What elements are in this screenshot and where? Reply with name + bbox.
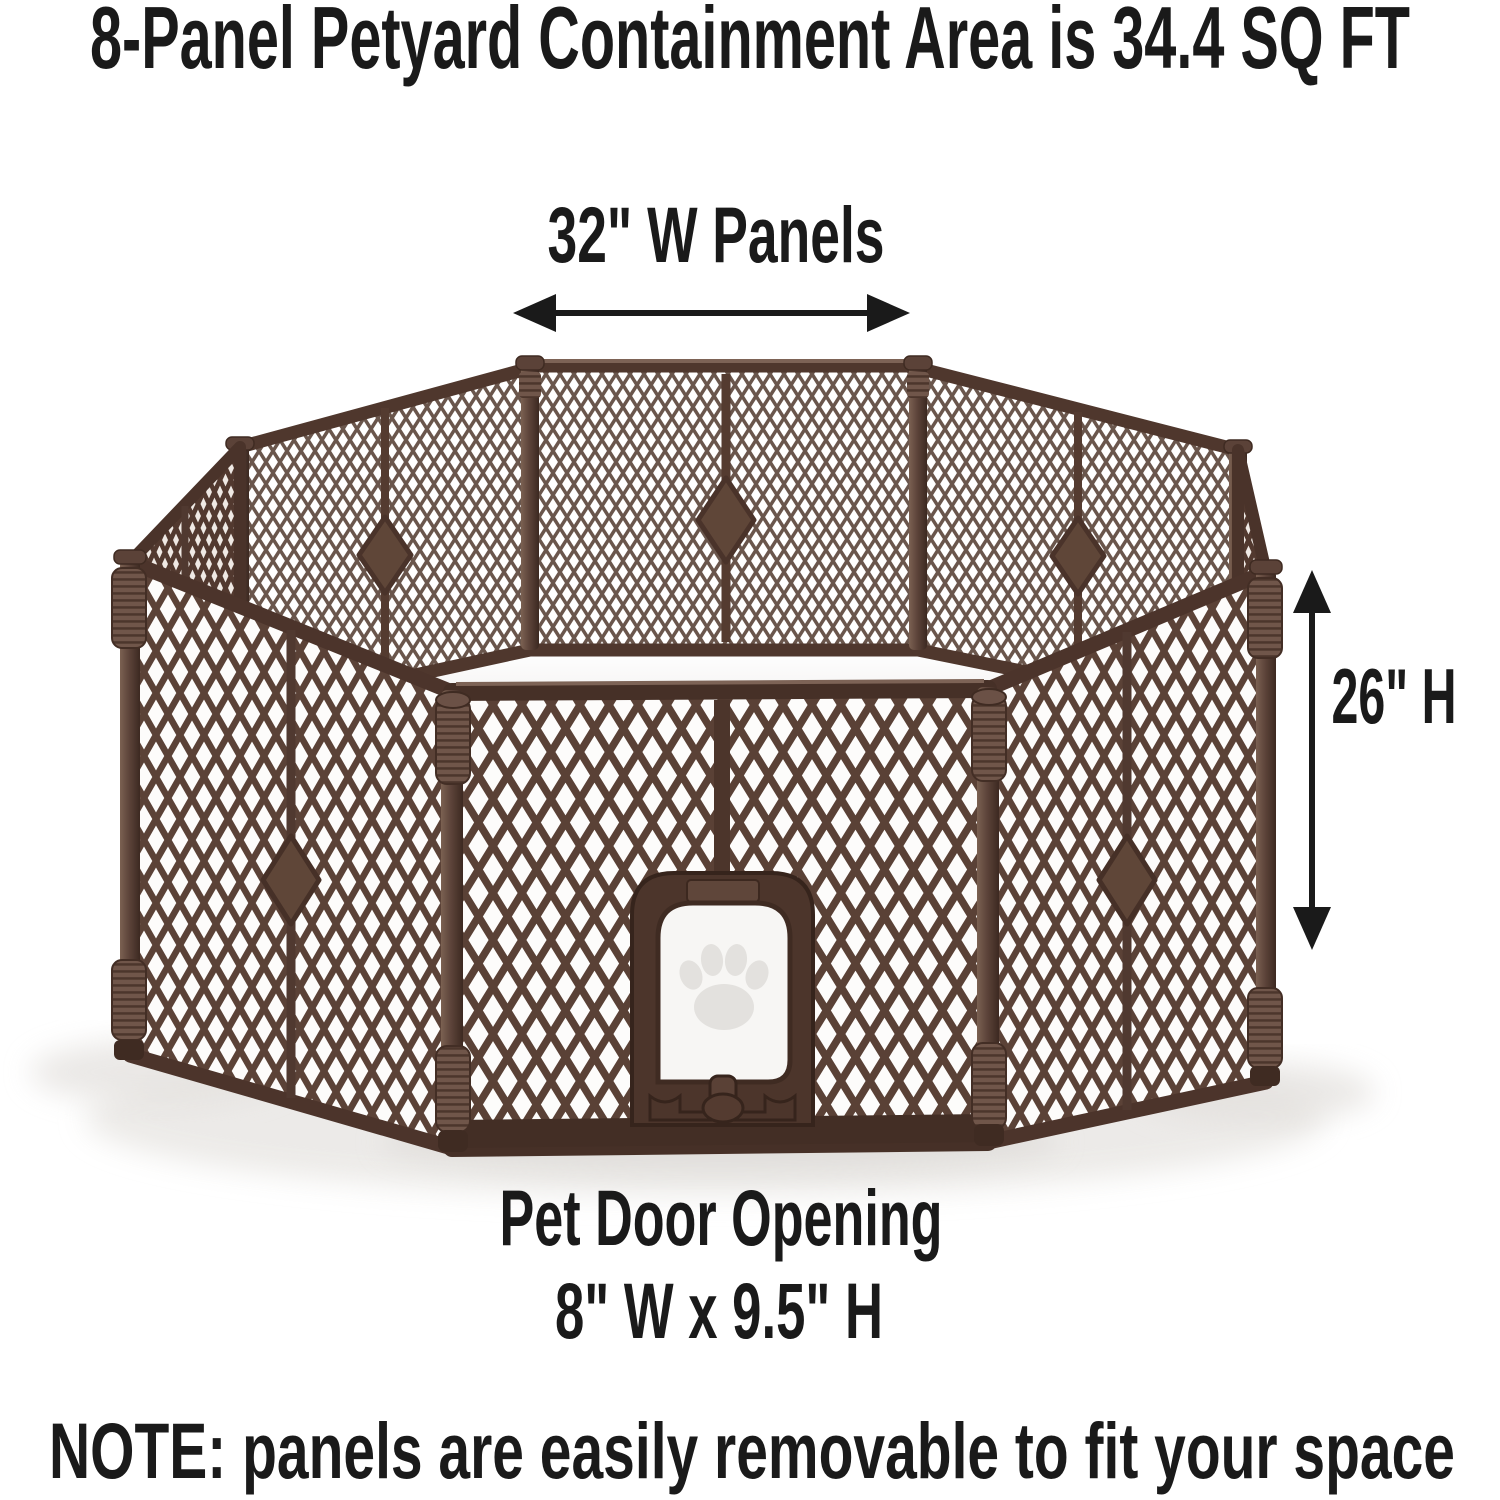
vertical-double-arrow-icon: [1293, 570, 1331, 950]
pet-door-size-label: 8" W x 9.5" H: [555, 1266, 883, 1355]
panel-height-label: 26" H: [1332, 652, 1457, 740]
petyard-illustration: 8-Panel Petyard Containment Area is 34.4…: [0, 0, 1500, 1500]
page-title: 8-Panel Petyard Containment Area is 34.4…: [90, 0, 1410, 87]
panel-back-center: [530, 361, 918, 650]
pet-door: [632, 873, 813, 1125]
note-label: NOTE: panels are easily removable to fit…: [49, 1406, 1455, 1495]
horizontal-double-arrow-icon: [513, 294, 910, 332]
pet-door-heading: Pet Door Opening: [500, 1173, 943, 1262]
panel-width-label: 32" W Panels: [548, 190, 885, 279]
petyard-infographic: 8-Panel Petyard Containment Area is 34.4…: [0, 0, 1500, 1500]
panel-front-door: [452, 681, 988, 1148]
